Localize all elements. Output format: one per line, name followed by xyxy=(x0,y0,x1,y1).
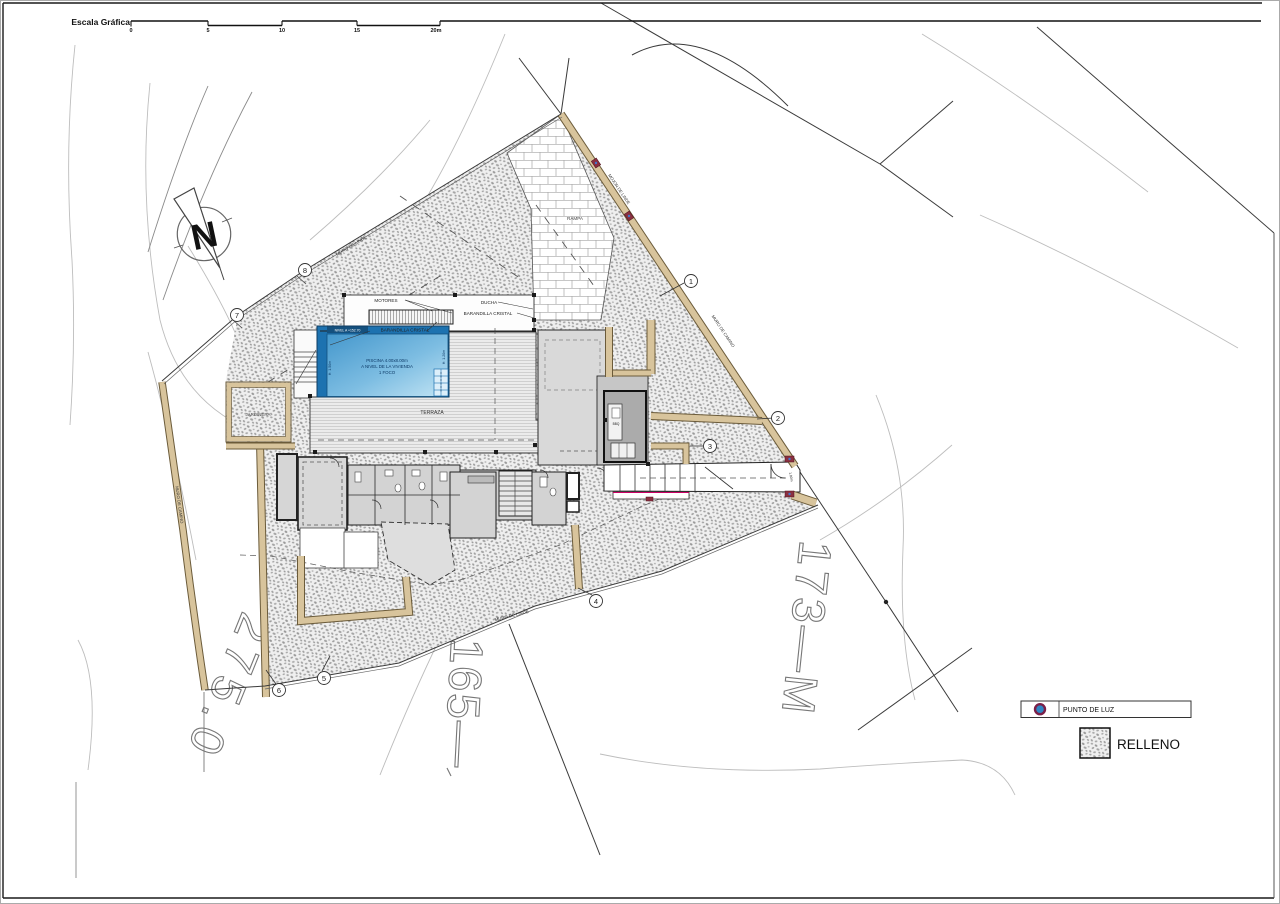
svg-text:5: 5 xyxy=(206,28,209,34)
svg-text:BARANDILLA CRISTAL: BARANDILLA CRISTAL xyxy=(381,328,430,333)
svg-text:JARDINERA: JARDINERA xyxy=(246,412,271,417)
svg-text:1: 1 xyxy=(689,277,693,286)
svg-text:TERRAZA: TERRAZA xyxy=(420,410,444,416)
svg-text:DUCHA: DUCHA xyxy=(481,300,498,305)
svg-text:0: 0 xyxy=(129,28,132,34)
svg-text:5: 5 xyxy=(322,674,326,683)
svg-text:10: 10 xyxy=(279,28,285,34)
svg-text:3: 3 xyxy=(708,442,712,451)
svg-text:RELLENO: RELLENO xyxy=(1117,737,1180,752)
svg-text:8: 8 xyxy=(303,266,307,275)
svg-text:PUNTO DE LUZ: PUNTO DE LUZ xyxy=(1063,707,1115,714)
svg-text:2: 2 xyxy=(776,414,780,423)
svg-text:BBQ: BBQ xyxy=(613,422,620,426)
svg-text:H: 1.50m: H: 1.50m xyxy=(328,361,332,376)
svg-text:1 FOCO: 1 FOCO xyxy=(379,370,396,375)
svg-text:7: 7 xyxy=(235,311,239,320)
svg-text:15: 15 xyxy=(354,28,360,34)
svg-text:165—: 165— xyxy=(435,637,494,770)
svg-text:RAMPA: RAMPA xyxy=(567,216,584,221)
svg-text:4: 4 xyxy=(594,597,598,606)
svg-text:20m: 20m xyxy=(430,28,441,34)
svg-text:NIVEL A +152.70: NIVEL A +152.70 xyxy=(335,328,361,332)
svg-text:MOTORES: MOTORES xyxy=(374,298,397,303)
svg-text:PISCINA 4.00x8.00m: PISCINA 4.00x8.00m xyxy=(366,358,408,363)
svg-text:A NIVEL DE LA VIVIENDA: A NIVEL DE LA VIVIENDA xyxy=(361,364,413,369)
svg-text:H: 1.20m: H: 1.20m xyxy=(442,350,446,365)
svg-text:6: 6 xyxy=(277,686,281,695)
svg-text:BARANDILLA CRISTAL: BARANDILLA CRISTAL xyxy=(464,311,513,316)
svg-text:Escala Gráfica: Escala Gráfica xyxy=(71,17,130,27)
